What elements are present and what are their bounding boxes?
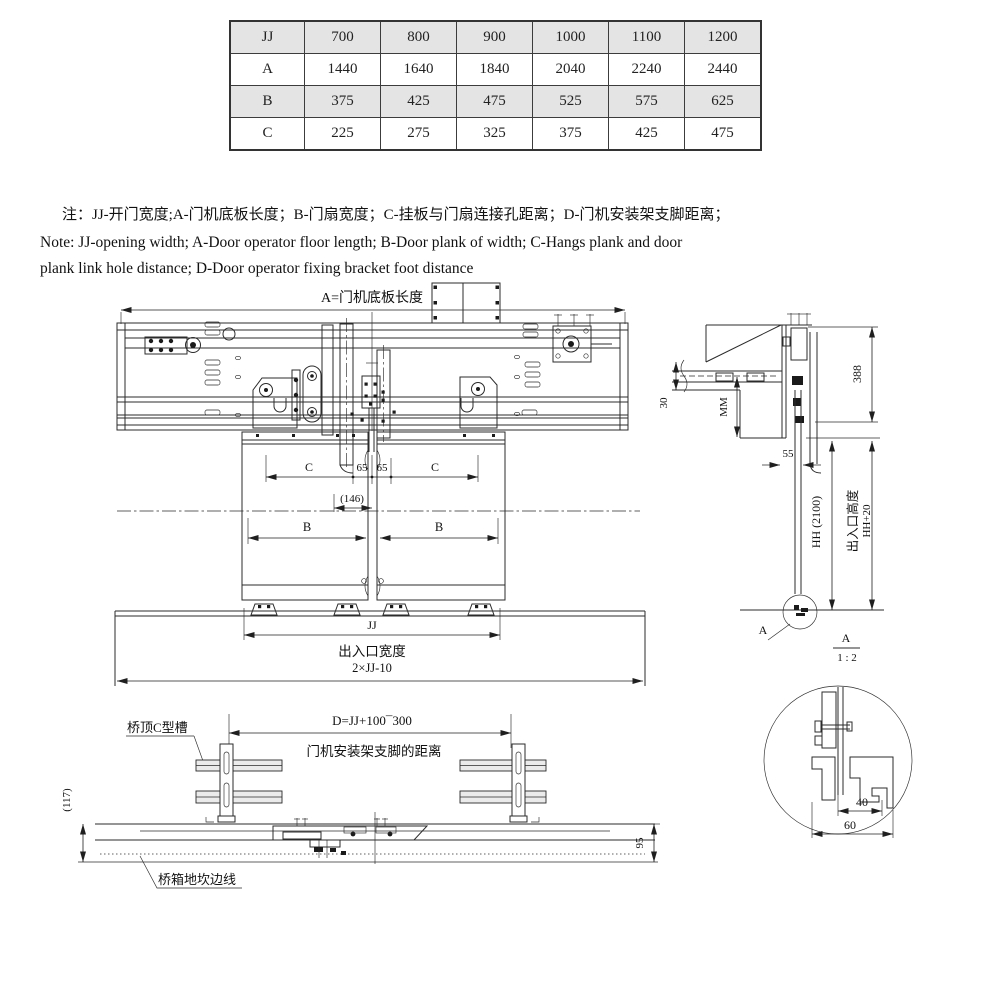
entrance-width-label: 出入口宽度 xyxy=(338,643,406,659)
detail-bubble xyxy=(783,595,817,629)
operator-section xyxy=(782,313,811,438)
dim-30: 30 xyxy=(658,397,670,409)
door-section xyxy=(795,332,821,594)
scale-ref-a: A xyxy=(842,631,851,645)
c-channel-label: 桥顶C型槽 xyxy=(127,720,188,735)
dim-hh: HH (2100) xyxy=(809,496,823,548)
dim-d-formula: D=JJ+100¯300 xyxy=(332,713,412,728)
dim-65-left: 65 xyxy=(357,462,369,474)
dim-95: 95 xyxy=(634,837,646,849)
detail-view-a: 40 60 xyxy=(764,686,912,838)
bottom-view: 桥顶C型槽 D=JJ+100¯300 门机安装架支脚的距离 xyxy=(61,713,660,888)
side-view: 30 MM 388 xyxy=(658,313,884,664)
dim-c-left: C xyxy=(305,460,313,474)
motor xyxy=(145,328,235,354)
sill-profile-left xyxy=(812,757,835,800)
dim-mm: MM xyxy=(718,397,730,417)
dim-388: 388 xyxy=(850,365,864,383)
detail-marker-a: A xyxy=(759,623,768,637)
dim-60: 60 xyxy=(844,818,856,832)
dim-146: (146) xyxy=(340,493,364,505)
door-guide-shoes xyxy=(251,604,494,615)
door-panel-left xyxy=(242,432,368,600)
bracket-distance-label: 门机安装架支脚的距离 xyxy=(307,743,442,759)
dim-hh20: HH+20 xyxy=(861,504,873,538)
entrance-height-label: 出入口高度 xyxy=(845,489,860,552)
dim-b-right: B xyxy=(435,520,443,534)
door-panel-right xyxy=(377,432,505,600)
c-channel-left xyxy=(196,744,282,822)
center-mechanism xyxy=(322,318,396,473)
technical-drawing: A=门机底板长度 xyxy=(0,0,1000,1000)
drawing-sheet: JJ 700 800 900 1000 1100 1200 A 1440 164… xyxy=(0,0,1000,1000)
c-channel-right xyxy=(460,744,546,822)
dim-jj: JJ xyxy=(367,618,377,632)
dim-a-label: A=门机底板长度 xyxy=(321,290,423,306)
control-box xyxy=(428,283,504,323)
dim-40: 40 xyxy=(856,795,868,809)
dim-c-right: C xyxy=(431,460,439,474)
dim-117: (117) xyxy=(61,788,73,812)
dim-b-left: B xyxy=(303,520,311,534)
belt-tensioner xyxy=(292,366,321,422)
scale-value: 1 : 2 xyxy=(837,652,857,664)
sill-edge-label: 桥箱地坎边线 xyxy=(158,872,236,887)
operator-plan xyxy=(95,812,655,864)
dim-65-right: 65 xyxy=(377,462,389,474)
guide-shoe-detail xyxy=(815,692,852,748)
door-hanger-left xyxy=(253,378,297,428)
dim-55: 55 xyxy=(783,448,795,460)
front-view: A=门机底板长度 xyxy=(115,283,645,686)
entrance-width-formula: 2×JJ-10 xyxy=(352,661,392,675)
